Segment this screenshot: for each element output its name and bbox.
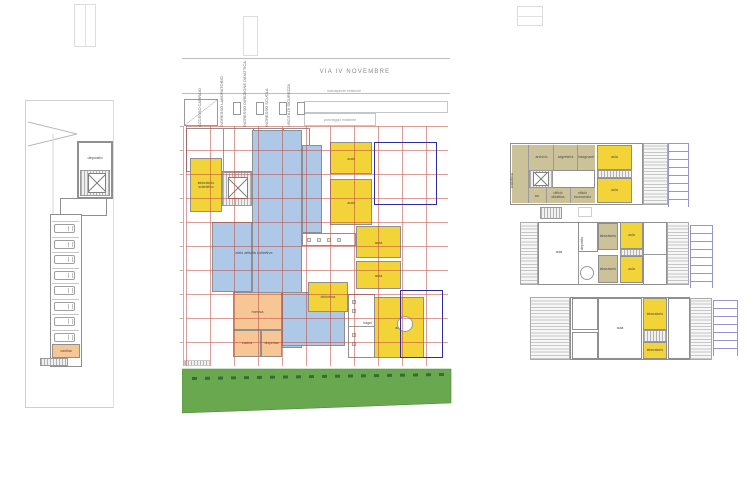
entrance-label: INGRESSO DIREZIONE DIDATTICA (242, 61, 248, 127)
wall (349, 326, 374, 327)
toilet-icon (337, 238, 341, 242)
parking-stall-line (52, 283, 79, 284)
elevator-icon (533, 172, 549, 186)
parking-stall-line (52, 268, 79, 269)
entrance-label: INGRESSO LABORATORIO (219, 76, 225, 127)
parking-stall-line (52, 330, 79, 331)
room-aula: aula (356, 226, 401, 258)
parked-car (54, 286, 75, 295)
exterior-stairs-icon (40, 358, 68, 366)
roof-hatch (643, 143, 668, 205)
toilet-icon (352, 342, 356, 346)
room-terrace (643, 222, 667, 285)
room-aula: aula (620, 222, 643, 249)
room-aula: aula (597, 178, 632, 203)
sidewalk (304, 101, 448, 113)
section-marker (74, 4, 96, 47)
parked-car (54, 302, 75, 311)
elevator-icon (228, 177, 248, 199)
stair-arc-icon (397, 316, 413, 332)
parking-stall-line (52, 299, 79, 300)
wall (644, 254, 666, 255)
room-cantina: cantina (52, 344, 80, 358)
parked-car (54, 333, 75, 342)
room-aula: aula (356, 261, 401, 289)
room (572, 332, 598, 359)
roof-hatch (667, 222, 689, 285)
toilet-icon (317, 238, 321, 242)
toilet-band (302, 233, 356, 246)
parked-car (54, 224, 75, 233)
pergola-grid (690, 225, 713, 288)
parked-car (54, 240, 75, 249)
parked-car (54, 317, 75, 326)
entrance-door (256, 102, 264, 115)
room-aula: aula (620, 256, 643, 283)
roof-hatch (520, 222, 538, 285)
entrance-label: USCITA DI SICUREZZA (286, 84, 292, 127)
pergola-grid (668, 143, 689, 207)
entrance-door (297, 102, 305, 115)
room-aula: aula (374, 297, 424, 358)
entrance-label: INGRESSO SCUOLA (264, 88, 270, 127)
room-aula: aula (330, 142, 372, 174)
parking-stall-line (52, 252, 79, 253)
room-dispensa: dispensa (261, 330, 282, 357)
roof-hatch (530, 297, 570, 360)
roof-hatch (690, 298, 712, 360)
stairs-icon (643, 330, 667, 342)
room-bagni: bagni (348, 294, 375, 358)
court-outline (374, 142, 437, 205)
toilet-icon (352, 309, 356, 313)
wall (577, 145, 578, 170)
entrance-label: ACCESSO CARRAIO (197, 88, 203, 127)
toilet-icon (327, 238, 331, 242)
room-label: deposito (579, 237, 585, 250)
parked-car (54, 271, 75, 280)
room-biblioteca: biblioteca (308, 282, 348, 312)
section-marker (517, 6, 543, 26)
parked-car (54, 255, 75, 264)
room-label: biblioteca (509, 173, 515, 188)
wall (223, 129, 224, 171)
room-laboratorio: laboratorio (643, 342, 667, 359)
wall (546, 188, 547, 203)
room-aula: aula (598, 298, 642, 359)
room-laboratorio: laboratorio (643, 298, 667, 330)
toilet-icon (352, 300, 356, 304)
street-name: VIA IV NOVEMBRE (300, 69, 410, 75)
street-edge (182, 58, 450, 59)
entrance-door (233, 102, 241, 115)
wall (553, 145, 554, 170)
parking-canopy: parcheggio esistente (304, 113, 376, 126)
stairs-icon (620, 249, 643, 256)
dimension-ruler (180, 126, 184, 366)
elevator-icon (88, 173, 106, 193)
toilet-icon (307, 238, 311, 242)
room-laboratorio: laboratorio (598, 223, 618, 250)
room-aula: aula (330, 179, 372, 225)
site-plan-canvas: deposito cantina VIA IV NOVEMBRE marciap… (0, 0, 750, 485)
pergola-grid (713, 300, 738, 356)
room-blue-upper (302, 145, 322, 233)
wall (570, 188, 571, 203)
parking-stall-line (52, 314, 79, 315)
parking-stall-line (52, 237, 79, 238)
section-marker (243, 16, 258, 56)
hall-atrio (212, 222, 252, 292)
sidewalk-note: marciapiede esistente (316, 89, 372, 93)
exterior-stairs-icon (540, 207, 562, 219)
toilet-icon (352, 333, 356, 337)
room-cucina: cucina (233, 330, 261, 357)
entrance-door (578, 207, 592, 217)
room-laboratorio: laboratorio (598, 255, 618, 283)
room-terrace (668, 298, 690, 359)
stairs-icon (597, 170, 632, 178)
canopy-note: parcheggio esistente (305, 118, 375, 122)
parking-stall-line (52, 221, 79, 222)
room-laboratorio: laboratorio scientifico (190, 158, 222, 212)
room-aula: aula (597, 145, 632, 170)
room (572, 298, 598, 330)
spiral-stair-icon (580, 266, 594, 280)
room-mensa: mensa (233, 292, 282, 330)
